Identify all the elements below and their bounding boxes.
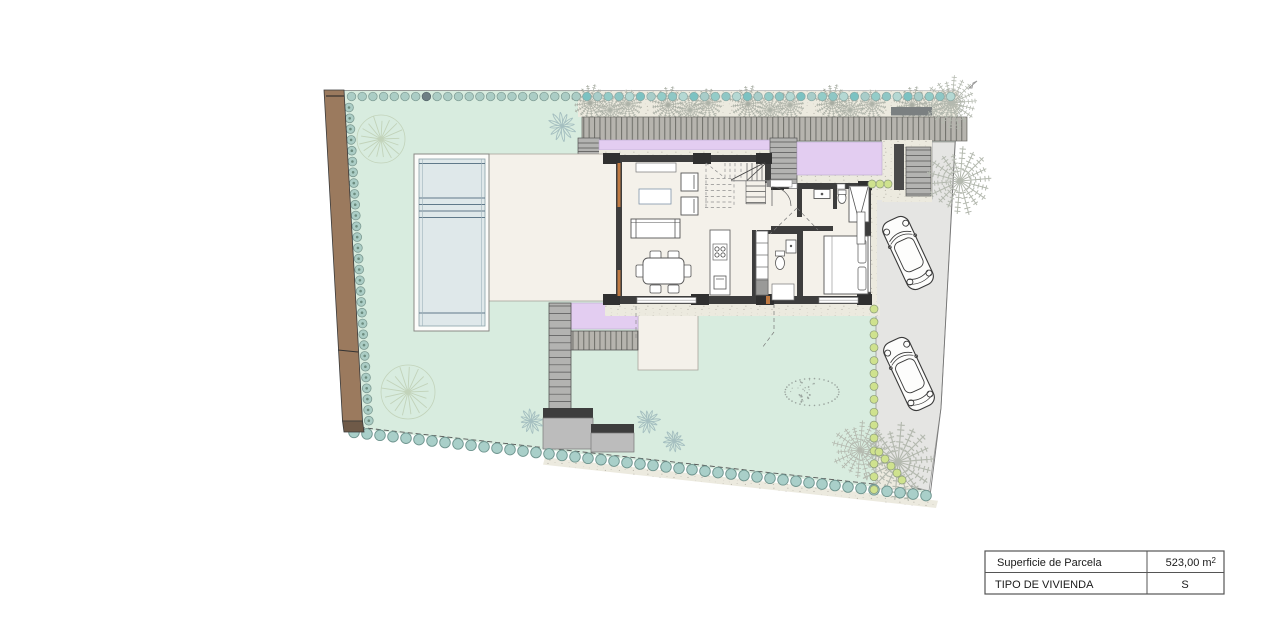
svg-text:Superficie de Parcela: Superficie de Parcela	[997, 557, 1102, 569]
svg-text:523,00 m2: 523,00 m2	[1166, 556, 1217, 569]
svg-text:TIPO DE VIVIENDA: TIPO DE VIVIENDA	[995, 579, 1094, 591]
svg-text:S: S	[1181, 579, 1188, 591]
